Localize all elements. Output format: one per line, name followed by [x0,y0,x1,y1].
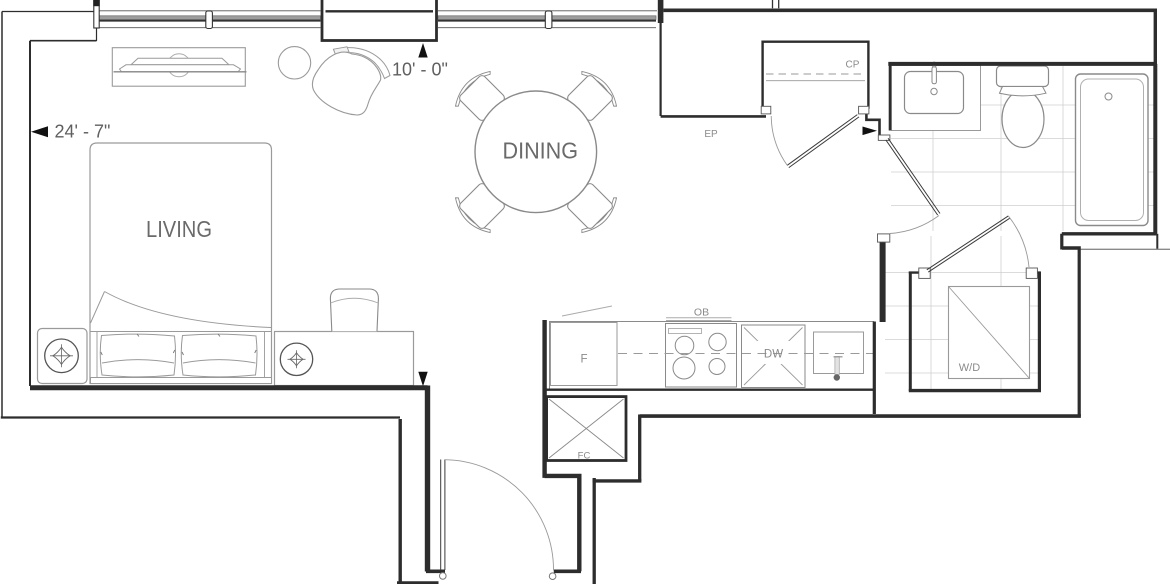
svg-text:10' - 0": 10' - 0" [392,60,448,80]
svg-text:24' - 7": 24' - 7" [55,122,111,142]
svg-text:OB: OB [694,307,709,319]
svg-text:FC: FC [578,451,591,462]
svg-text:LIVING: LIVING [146,216,212,242]
svg-text:EP: EP [704,129,718,140]
svg-text:DINING: DINING [503,137,579,163]
svg-text:DW: DW [764,349,783,361]
svg-text:W/D: W/D [959,362,980,374]
svg-text:CP: CP [846,60,860,71]
svg-text:F: F [580,354,587,366]
